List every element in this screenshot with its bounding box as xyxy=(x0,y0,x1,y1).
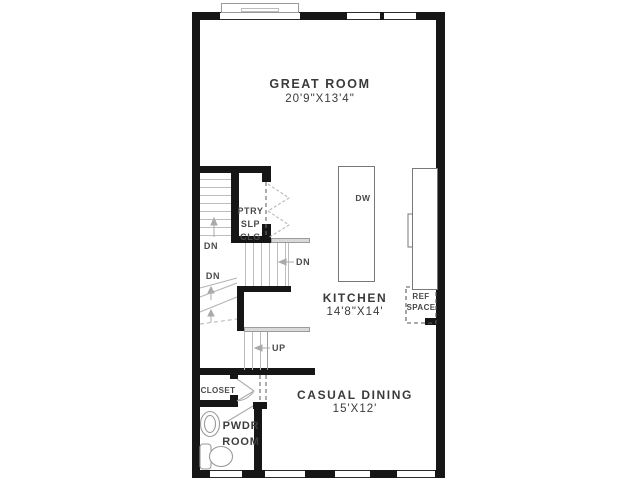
pwdr-room-label-2: ROOM xyxy=(218,436,264,448)
kitchen-counter xyxy=(412,168,438,290)
pantry-door xyxy=(266,182,289,238)
powder-sink xyxy=(201,412,220,437)
powder-door xyxy=(228,406,253,421)
great-room-name: GREAT ROOM xyxy=(220,77,420,91)
pantry-label-2: SLP xyxy=(237,219,264,229)
dn-label-3: DN xyxy=(296,257,320,267)
pwdr-room-label-1: PWDR xyxy=(218,420,264,432)
great-room-dims: 20'9"X13'4" xyxy=(220,93,420,105)
pantry-label-1: PTRY xyxy=(237,206,264,216)
casual-dining-name: CASUAL DINING xyxy=(275,388,435,402)
winder-treads xyxy=(200,278,237,324)
pantry-label-3: CLG xyxy=(237,232,264,242)
closet-label: CLOSET xyxy=(198,386,238,395)
up-label: UP xyxy=(272,343,294,353)
dn-label-1: DN xyxy=(197,241,225,251)
ref-label-2: SPACE xyxy=(406,303,436,312)
closet-door xyxy=(237,379,254,401)
floor-plan: GREAT ROOM 20'9"X13'4" KITCHEN 14'8"X14'… xyxy=(0,0,640,480)
kitchen-dims: 14'8"X14' xyxy=(305,306,405,318)
dn-label-2: DN xyxy=(199,271,227,281)
kitchen-island xyxy=(338,166,375,282)
dining-opening xyxy=(260,375,266,402)
casual-dining-dims: 15'X12' xyxy=(275,403,435,415)
kitchen-name: KITCHEN xyxy=(305,291,405,305)
dishwasher-label: DW xyxy=(352,193,374,203)
ref-label-1: REF xyxy=(406,292,436,301)
